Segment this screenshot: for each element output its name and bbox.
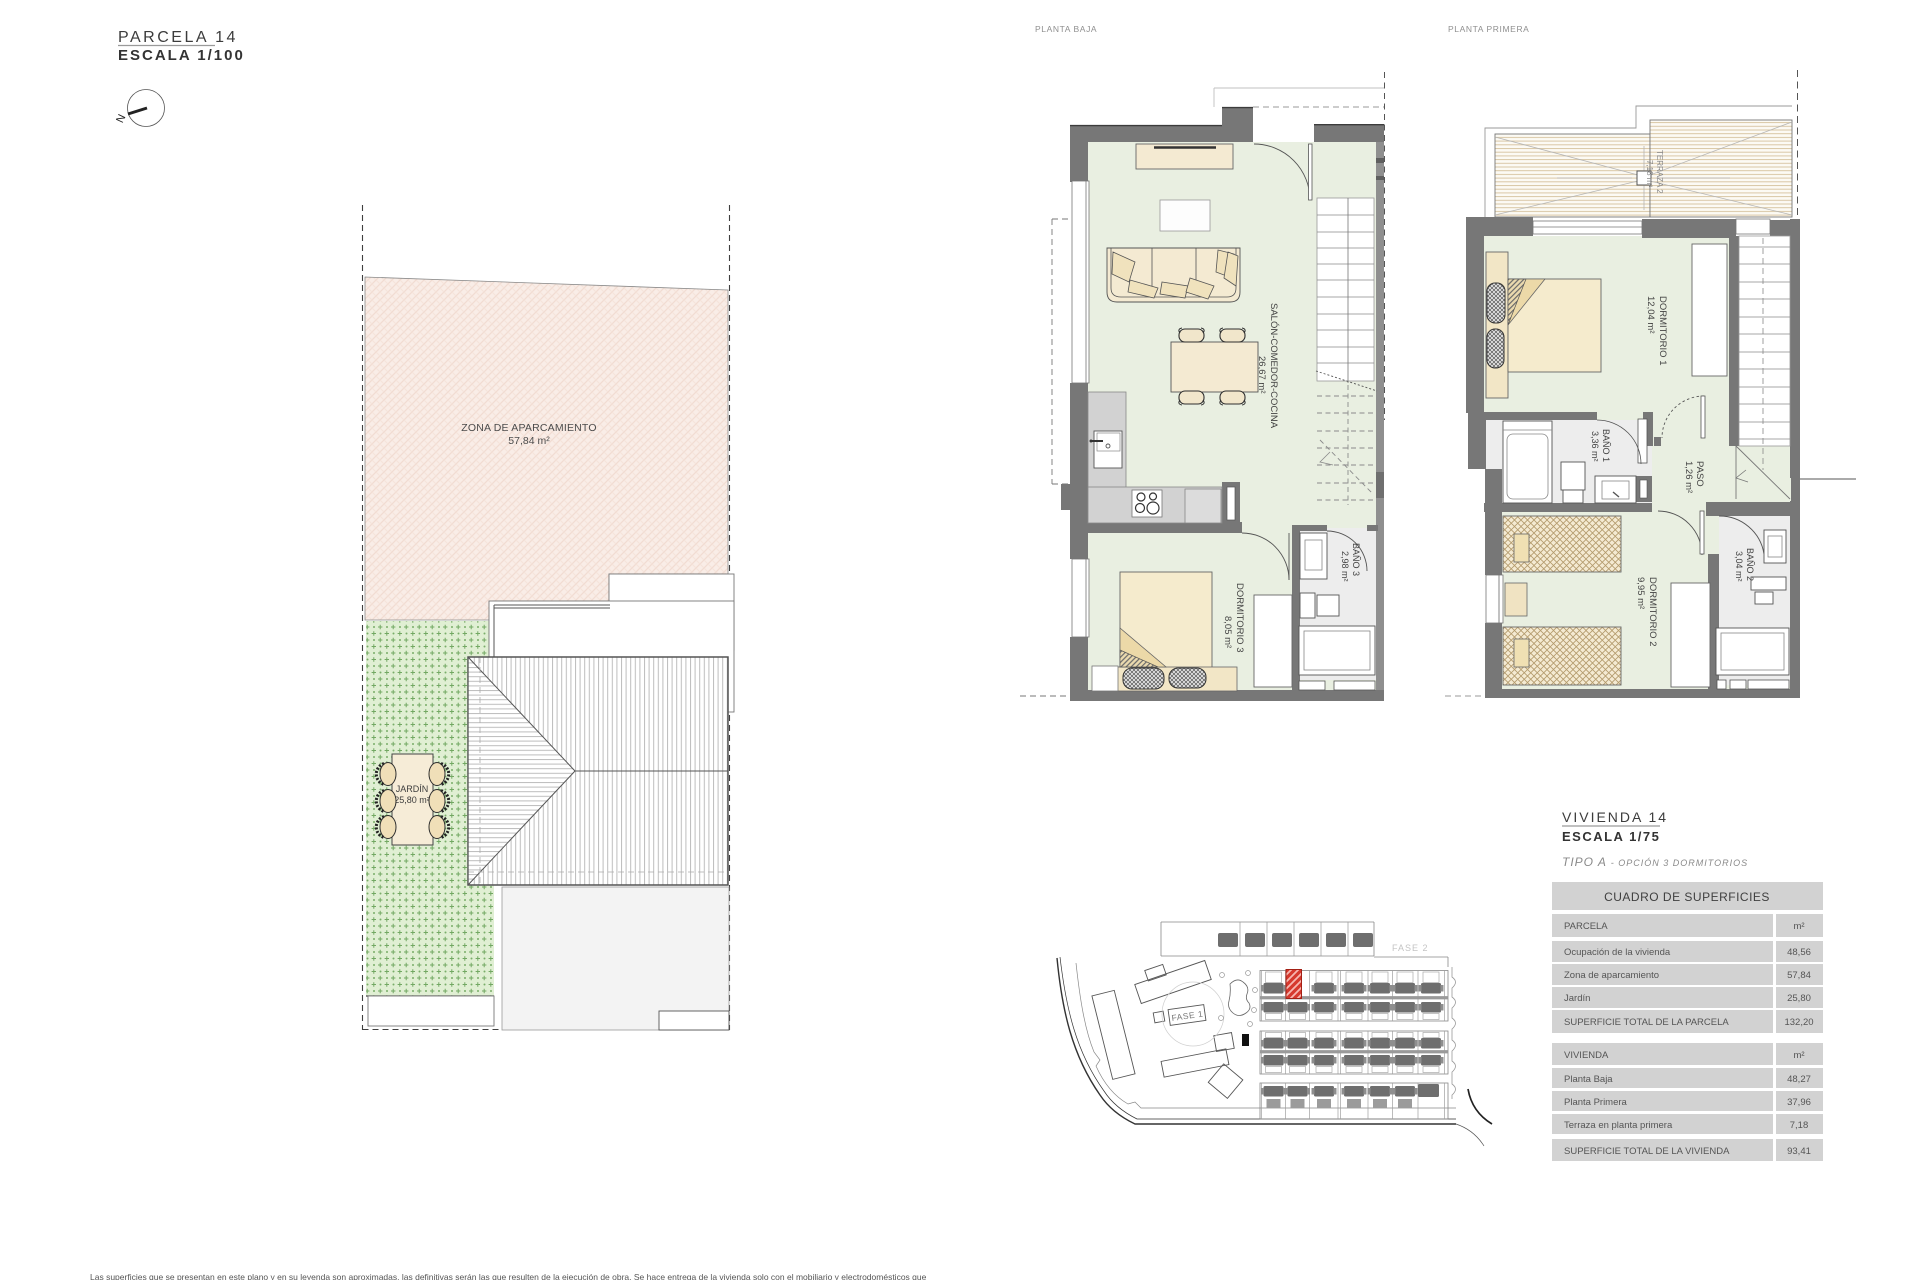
svg-text:ZONA DE APARCAMIENTO: ZONA DE APARCAMIENTO [461, 422, 596, 434]
svg-text:Jardín: Jardín [1564, 993, 1590, 1004]
svg-text:PLANTA PRIMERA: PLANTA PRIMERA [1448, 24, 1529, 34]
svg-text:26,67 m²: 26,67 m² [1256, 356, 1267, 394]
svg-text:48,27: 48,27 [1787, 1074, 1811, 1085]
svg-text:3,04 m²: 3,04 m² [1734, 551, 1744, 582]
svg-text:PASO: PASO [1694, 461, 1705, 487]
svg-text:N: N [114, 113, 128, 125]
svg-text:DORMITORIO 2: DORMITORIO 2 [1647, 577, 1658, 647]
svg-text:DORMITORIO 1: DORMITORIO 1 [1657, 296, 1668, 366]
svg-text:12,04 m²: 12,04 m² [1645, 296, 1656, 334]
svg-text:ESCALA 1/100: ESCALA 1/100 [118, 47, 245, 64]
svg-text:25,80: 25,80 [1787, 993, 1811, 1004]
svg-text:BAÑO 1: BAÑO 1 [1601, 429, 1611, 462]
svg-text:DORMITORIO 3: DORMITORIO 3 [1234, 583, 1245, 653]
svg-text:m²: m² [1793, 921, 1804, 932]
svg-text:3,36 m²: 3,36 m² [1590, 431, 1600, 462]
svg-text:7,18: 7,18 [1790, 1120, 1809, 1131]
svg-text:FASE 1: FASE 1 [1171, 1009, 1204, 1023]
svg-text:93,41: 93,41 [1787, 1146, 1811, 1157]
svg-text:25,80 m²: 25,80 m² [394, 795, 430, 805]
svg-text:VIVIENDA: VIVIENDA [1564, 1050, 1609, 1061]
svg-text:CUADRO DE SUPERFICIES: CUADRO DE SUPERFICIES [1604, 890, 1770, 904]
svg-text:FASE 2: FASE 2 [1392, 943, 1429, 953]
svg-text:48,56: 48,56 [1787, 947, 1811, 958]
svg-text:Planta Primera: Planta Primera [1564, 1097, 1628, 1108]
svg-text:BAÑO 3: BAÑO 3 [1351, 543, 1361, 576]
svg-text:PARCELA: PARCELA [1564, 921, 1608, 932]
svg-text:PARCELA 14: PARCELA 14 [118, 29, 238, 46]
svg-text:BAÑO 2: BAÑO 2 [1745, 548, 1755, 581]
svg-text:m²: m² [1793, 1050, 1804, 1061]
svg-text:Las superficies que se present: Las superficies que se presentan en este… [90, 1272, 927, 1280]
svg-text:9,95 m²: 9,95 m² [1635, 577, 1646, 609]
svg-text:TIPO A - OPCIÓN 3 DORMITORIOS: TIPO A - OPCIÓN 3 DORMITORIOS [1562, 855, 1748, 869]
svg-text:JARDÍN: JARDÍN [396, 784, 429, 794]
svg-text:TERRAZA 2: TERRAZA 2 [1655, 150, 1664, 194]
svg-text:PLANTA BAJA: PLANTA BAJA [1035, 24, 1097, 34]
svg-text:7,18 m²: 7,18 m² [1645, 160, 1654, 187]
svg-text:37,96: 37,96 [1787, 1097, 1811, 1108]
svg-text:Ocupación de la vivienda: Ocupación de la vivienda [1564, 947, 1671, 958]
svg-text:SUPERFICIE TOTAL DE LA PARCELA: SUPERFICIE TOTAL DE LA PARCELA [1564, 1017, 1729, 1028]
svg-text:132,20: 132,20 [1784, 1017, 1813, 1028]
svg-text:ESCALA 1/75: ESCALA 1/75 [1562, 829, 1660, 844]
svg-text:8,05 m²: 8,05 m² [1222, 616, 1233, 648]
svg-text:SUPERFICIE TOTAL DE LA VIVIEND: SUPERFICIE TOTAL DE LA VIVIENDA [1564, 1146, 1730, 1157]
svg-text:2,98 m²: 2,98 m² [1340, 551, 1350, 582]
svg-text:1,26 m²: 1,26 m² [1683, 461, 1694, 493]
svg-text:Terraza en planta primera: Terraza en planta primera [1564, 1120, 1673, 1131]
svg-text:Planta Baja: Planta Baja [1564, 1074, 1613, 1085]
svg-text:VIVIENDA 14: VIVIENDA 14 [1562, 809, 1668, 825]
svg-text:57,84: 57,84 [1787, 970, 1811, 981]
svg-text:Zona de aparcamiento: Zona de aparcamiento [1564, 970, 1659, 981]
svg-text:57,84 m²: 57,84 m² [508, 435, 550, 447]
svg-text:SALÓN-COMEDOR-COCINA: SALÓN-COMEDOR-COCINA [1268, 303, 1279, 429]
